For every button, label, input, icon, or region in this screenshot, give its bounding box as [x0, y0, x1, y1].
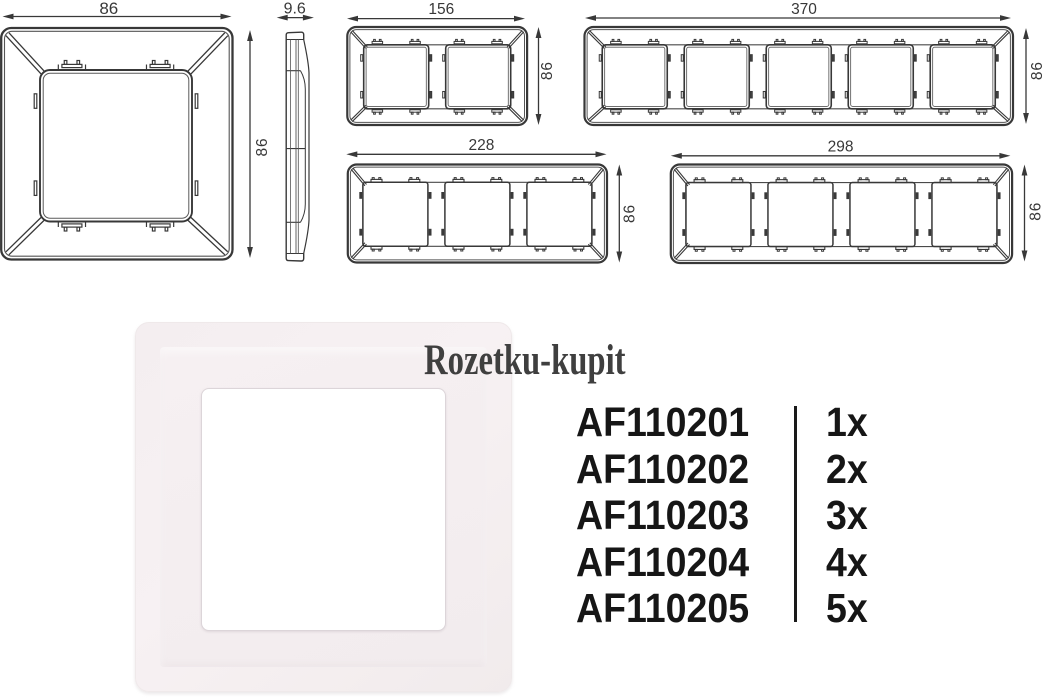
svg-text:156: 156 [428, 1, 454, 18]
svg-text:86: 86 [539, 61, 556, 80]
svg-text:86: 86 [1028, 202, 1044, 221]
svg-text:86: 86 [99, 0, 118, 18]
svg-text:228: 228 [468, 137, 494, 154]
svg-text:370: 370 [791, 1, 817, 18]
svg-text:86: 86 [254, 137, 271, 156]
svg-text:298: 298 [828, 139, 854, 156]
svg-text:9.6: 9.6 [284, 1, 306, 18]
svg-text:86: 86 [1029, 61, 1044, 80]
svg-text:86: 86 [621, 204, 638, 223]
